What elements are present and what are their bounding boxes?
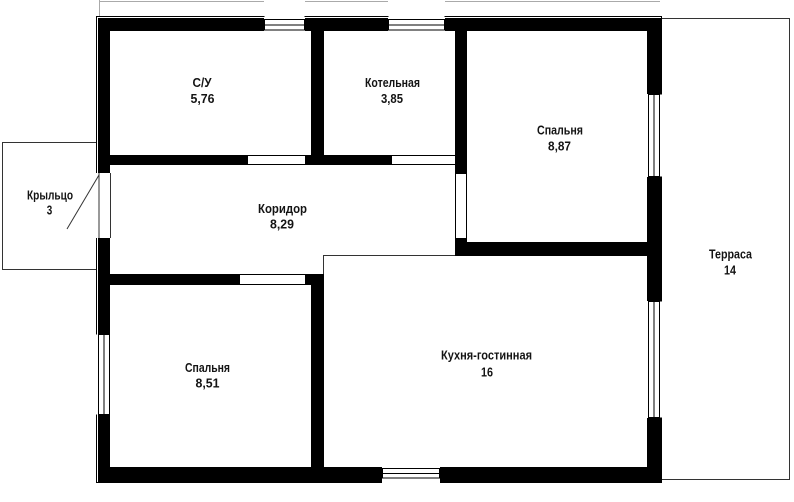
svg-text:3: 3 bbox=[47, 204, 53, 218]
svg-text:8,29: 8,29 bbox=[270, 218, 294, 232]
svg-text:Коридор: Коридор bbox=[258, 202, 307, 216]
svg-text:3,85: 3,85 bbox=[381, 92, 403, 106]
svg-text:Спальня: Спальня bbox=[537, 124, 583, 138]
svg-text:С/У: С/У bbox=[193, 76, 212, 90]
svg-text:Котельная: Котельная bbox=[365, 76, 420, 90]
svg-text:Терраса: Терраса bbox=[709, 248, 753, 262]
svg-text:16: 16 bbox=[481, 366, 493, 380]
svg-text:Спальня: Спальня bbox=[185, 361, 230, 375]
svg-text:5,76: 5,76 bbox=[191, 92, 215, 106]
svg-text:8,87: 8,87 bbox=[548, 140, 571, 154]
svg-text:14: 14 bbox=[724, 264, 736, 278]
svg-text:Крыльцо: Крыльцо bbox=[27, 189, 73, 203]
svg-text:Кухня-гостинная: Кухня-гостинная bbox=[441, 349, 532, 363]
svg-text:8,51: 8,51 bbox=[196, 377, 220, 391]
